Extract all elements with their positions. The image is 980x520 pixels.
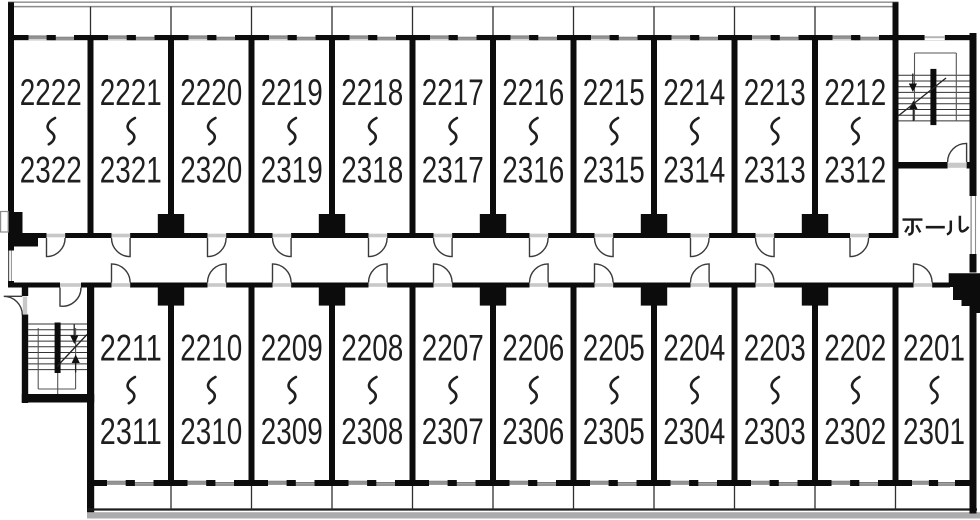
svg-text:2301: 2301 (903, 411, 965, 452)
svg-text:2309: 2309 (261, 411, 323, 452)
svg-text:2320: 2320 (180, 150, 242, 191)
svg-text:2219: 2219 (261, 72, 323, 113)
svg-text:2201: 2201 (903, 328, 965, 369)
svg-text:2302: 2302 (824, 411, 886, 452)
svg-text:2315: 2315 (583, 150, 645, 191)
svg-text:2210: 2210 (180, 328, 242, 369)
svg-text:2202: 2202 (824, 328, 886, 369)
svg-text:2319: 2319 (261, 150, 323, 191)
svg-text:2212: 2212 (824, 72, 886, 113)
svg-text:2310: 2310 (180, 411, 242, 452)
svg-text:2312: 2312 (824, 150, 886, 191)
svg-text:2307: 2307 (422, 411, 484, 452)
svg-text:2208: 2208 (341, 328, 403, 369)
svg-text:2321: 2321 (100, 150, 162, 191)
svg-text:2218: 2218 (341, 72, 403, 113)
svg-text:2304: 2304 (663, 411, 725, 452)
svg-text:2214: 2214 (663, 72, 725, 113)
svg-text:2209: 2209 (261, 328, 323, 369)
svg-text:2216: 2216 (502, 72, 564, 113)
svg-text:2203: 2203 (744, 328, 806, 369)
svg-text:2303: 2303 (744, 411, 806, 452)
svg-text:2322: 2322 (20, 150, 82, 191)
svg-text:2313: 2313 (744, 150, 806, 191)
svg-text:2308: 2308 (341, 411, 403, 452)
svg-text:2205: 2205 (583, 328, 645, 369)
svg-text:2215: 2215 (583, 72, 645, 113)
svg-text:2318: 2318 (341, 150, 403, 191)
svg-text:2213: 2213 (744, 72, 806, 113)
svg-text:2317: 2317 (422, 150, 484, 191)
svg-text:2306: 2306 (502, 411, 564, 452)
svg-text:2206: 2206 (502, 328, 564, 369)
svg-text:2204: 2204 (663, 328, 725, 369)
svg-text:2316: 2316 (502, 150, 564, 191)
svg-text:2311: 2311 (100, 411, 162, 452)
svg-text:2207: 2207 (422, 328, 484, 369)
svg-text:2314: 2314 (663, 150, 725, 191)
svg-text:2222: 2222 (20, 72, 82, 113)
svg-text:2305: 2305 (583, 411, 645, 452)
svg-text:2211: 2211 (100, 328, 162, 369)
svg-text:2217: 2217 (422, 72, 484, 113)
svg-text:2220: 2220 (180, 72, 242, 113)
svg-text:2221: 2221 (100, 72, 162, 113)
